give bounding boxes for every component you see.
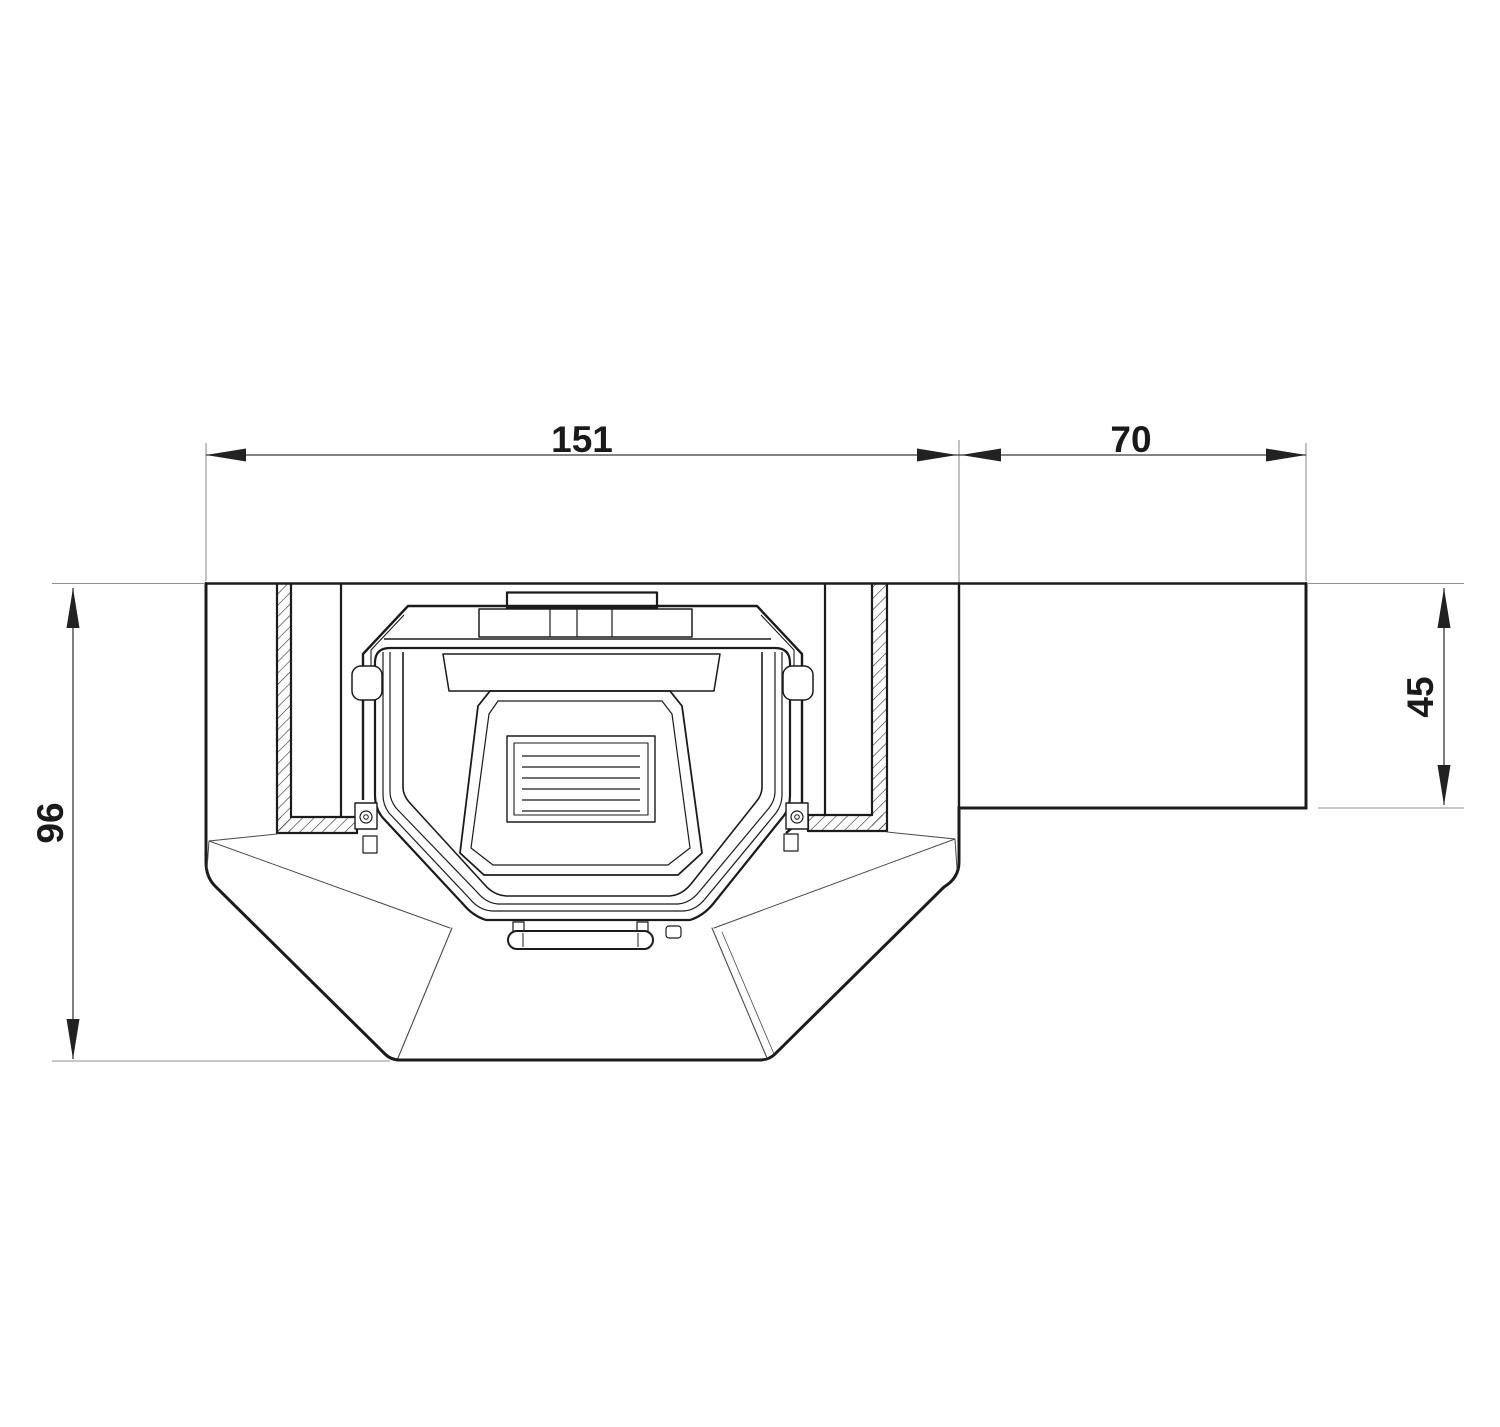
arrow-70-left — [961, 449, 1001, 462]
hinge-tab-upper-left — [352, 666, 382, 700]
technical-drawing: 151 70 96 45 — [0, 0, 1500, 1427]
arrow-70-right — [1266, 449, 1306, 462]
window-frame-inner — [471, 701, 690, 865]
grille — [507, 736, 655, 822]
dim-label-70: 70 — [1110, 419, 1151, 460]
bracket-left-bolt — [360, 811, 372, 823]
bevel-edge-lines — [207, 832, 957, 928]
hatch-left-horizontal — [277, 817, 357, 833]
firebox-back-panel — [443, 654, 720, 691]
dim-label-96: 96 — [30, 802, 71, 843]
hinges-and-brackets — [352, 666, 813, 853]
hatch-left-vertical — [277, 584, 291, 833]
door-latch — [666, 926, 681, 938]
clip-left — [363, 836, 377, 853]
clip-right — [784, 834, 798, 851]
top-plate-controls — [479, 609, 692, 637]
dimension-arrowheads — [67, 449, 1451, 1060]
door-handle — [508, 922, 681, 949]
window-frame-outer — [460, 691, 702, 875]
arrow-45-bottom — [1438, 765, 1451, 805]
dimensions: 151 70 96 45 — [30, 419, 1451, 1059]
arrow-96-bottom — [67, 1019, 80, 1059]
handle-bar — [508, 931, 653, 949]
arrow-45-top — [1438, 588, 1451, 628]
dim-label-45: 45 — [1400, 676, 1441, 717]
stove-body-outline — [363, 606, 802, 833]
stove-insert — [352, 593, 813, 950]
arrow-96-top — [67, 588, 80, 628]
bracket-right-bolt — [791, 811, 803, 823]
arrow-151-left — [206, 449, 246, 462]
drawing-canvas: 151 70 96 45 — [0, 0, 1500, 1427]
dim-label-151: 151 — [551, 419, 613, 460]
hatch-right-horizontal — [808, 815, 887, 831]
arrow-151-right — [917, 449, 957, 462]
extension-lines — [52, 440, 1464, 1061]
hatch-right-vertical — [872, 584, 887, 831]
hinge-tab-upper-right — [783, 666, 813, 700]
